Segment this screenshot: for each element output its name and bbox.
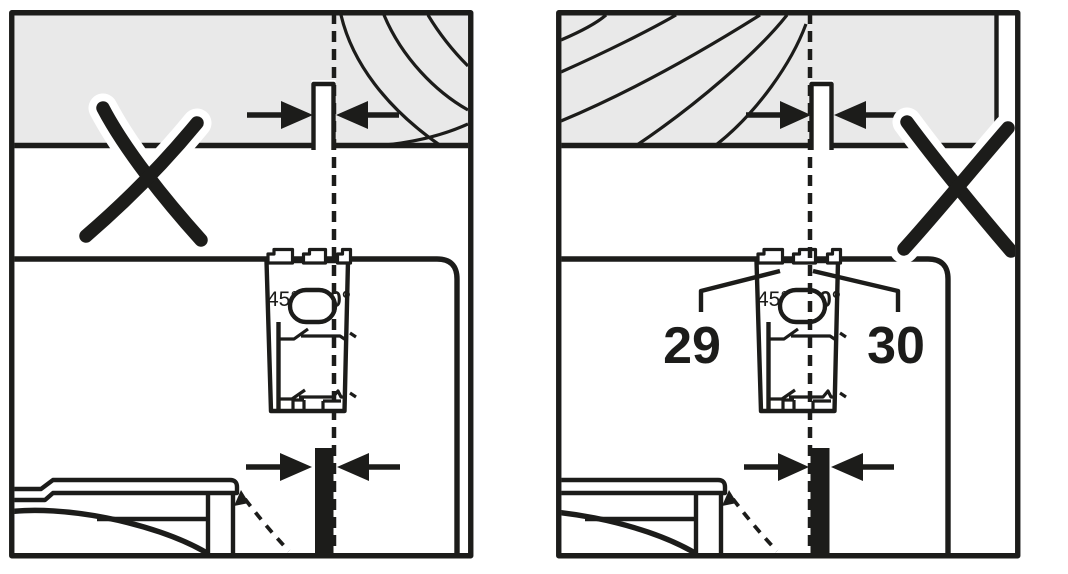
blade-bar [811,448,830,555]
right-panel: 29 30 [496,13,1018,556]
callout-29-label: 29 [663,317,721,375]
arrow-left-icon [831,453,863,481]
cut-line-indicator [267,250,357,412]
left-panel-content [8,13,468,556]
arrow-right-icon [280,453,312,481]
arrow-left-icon [337,453,369,481]
kerf-notch [810,80,834,150]
figure-canvas: 45° 0° [0,0,1068,574]
workpiece-surface [561,15,997,145]
saw-body [496,480,777,553]
saw-base-plate-edge [559,259,948,556]
workpiece-surface [14,15,468,145]
saw-body [8,480,289,553]
left-panel [8,13,471,556]
blade-bar [315,448,334,555]
callout-30-label: 30 [867,317,925,375]
saw-blade [246,448,400,555]
arrow-right-icon [778,453,809,481]
right-panel-content: 29 30 [496,13,1011,556]
